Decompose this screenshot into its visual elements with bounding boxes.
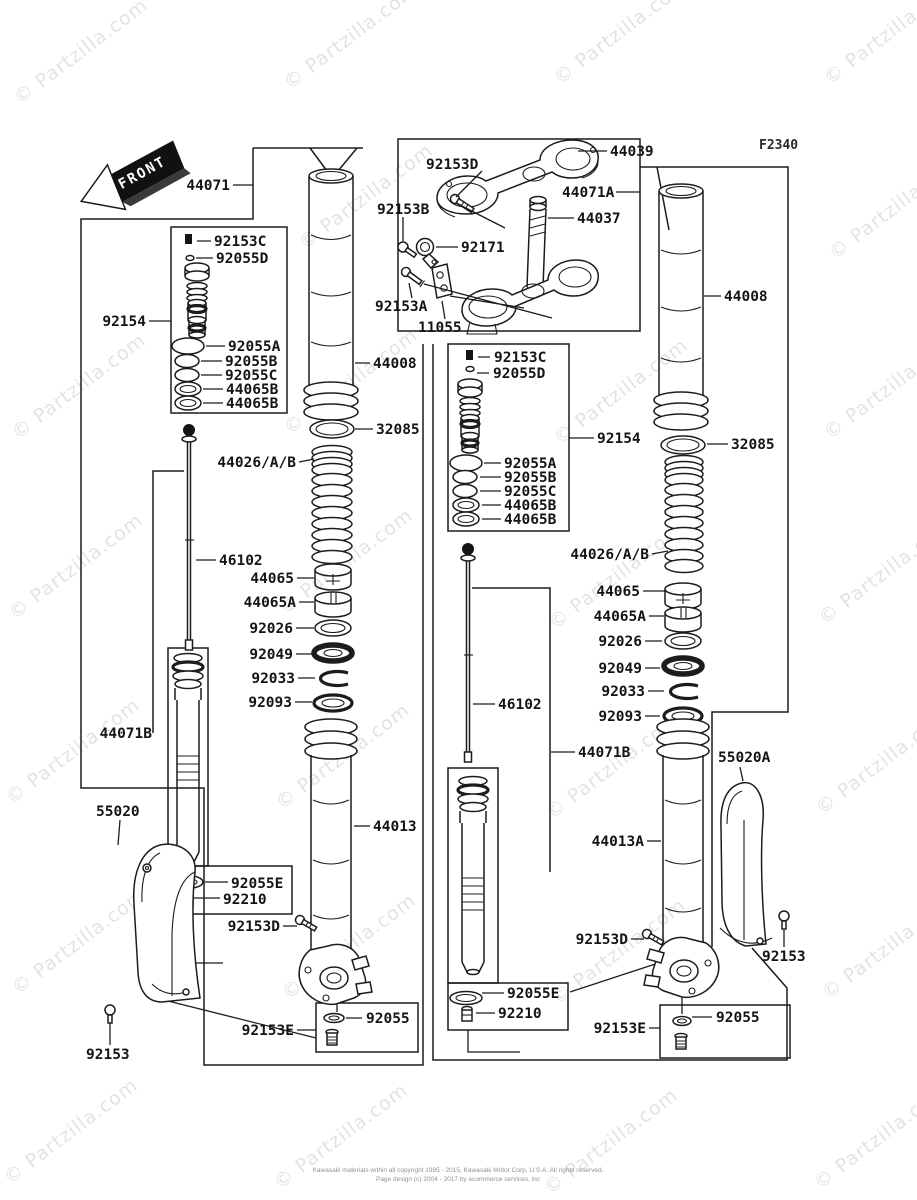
part-label-44039: 44039 bbox=[610, 144, 654, 160]
svg-text:© Partzilla.com: © Partzilla.com bbox=[820, 329, 917, 444]
part-label-44065-left: 44065 bbox=[250, 571, 294, 587]
svg-text:© Partzilla.com: © Partzilla.com bbox=[550, 0, 692, 89]
part-label-44071: 44071 bbox=[186, 178, 230, 194]
part-label-92093-right: 92093 bbox=[598, 709, 642, 725]
clamp-leader-lines bbox=[424, 203, 552, 318]
right-fork-guard-55020a bbox=[720, 783, 772, 946]
part-label-44026ab-left: 44026/A/B bbox=[217, 455, 296, 471]
part-label-92171: 92171 bbox=[461, 240, 505, 256]
svg-text:© Partzilla.com: © Partzilla.com bbox=[2, 694, 144, 809]
part-label-46102-left: 46102 bbox=[219, 553, 263, 569]
part-label-46102-right: 46102 bbox=[498, 697, 542, 713]
part-label-92153a: 92153A bbox=[375, 299, 428, 315]
part-label-92049-right: 92049 bbox=[598, 661, 642, 677]
part-label-92033-left: 92033 bbox=[251, 671, 295, 687]
footer-copyright-line1: Kawasaki materials within all copyright … bbox=[313, 1167, 604, 1174]
part-label-44013: 44013 bbox=[373, 819, 417, 835]
part-label-92154-left: 92154 bbox=[102, 314, 146, 330]
svg-text:© Partzilla.com: © Partzilla.com bbox=[10, 0, 152, 109]
part-label-44008-right: 44008 bbox=[724, 289, 768, 305]
svg-text:© Partzilla.com: © Partzilla.com bbox=[812, 704, 917, 819]
part-label-92153e-right-bottom: 92153E bbox=[594, 1021, 646, 1037]
svg-text:© Partzilla.com: © Partzilla.com bbox=[8, 884, 150, 999]
svg-text:© Partzilla.com: © Partzilla.com bbox=[818, 889, 917, 1004]
mid-cap-assembly-92154 bbox=[450, 350, 482, 526]
bracket-11055 bbox=[432, 264, 452, 298]
footer-copyright-line2: Page design (c) 2004 - 2017 by ecommerce… bbox=[376, 1176, 541, 1183]
part-label-92153c-mid: 92153C bbox=[494, 350, 546, 366]
front-arrow: FRONT bbox=[72, 137, 194, 223]
part-label-44026ab-right: 44026/A/B bbox=[570, 547, 649, 563]
part-label-92153b: 92153B bbox=[377, 202, 430, 218]
left-cap-assembly-92154 bbox=[172, 234, 209, 410]
svg-text:© Partzilla.com: © Partzilla.com bbox=[810, 1079, 917, 1194]
part-label-92026-left: 92026 bbox=[249, 621, 293, 637]
part-label-92153-right: 92153 bbox=[762, 949, 806, 965]
part-label-92153d-right-lower: 92153D bbox=[576, 932, 629, 948]
part-label-92055e-right: 92055E bbox=[507, 986, 559, 1002]
right-ring-32085 bbox=[661, 436, 705, 454]
part-label-92055-right-bottom: 92055 bbox=[716, 1010, 760, 1026]
part-label-92153c-left: 92153C bbox=[214, 234, 266, 250]
right-guard-bolt-92153 bbox=[779, 911, 789, 929]
right-seal-stack bbox=[664, 583, 702, 724]
part-label-92153e-left-bottom: 92153E bbox=[242, 1023, 294, 1039]
right-fork-spring bbox=[665, 456, 703, 573]
part-label-44071b-left: 44071B bbox=[100, 726, 153, 742]
svg-text:© Partzilla.com: © Partzilla.com bbox=[540, 1084, 682, 1199]
part-label-44037: 44037 bbox=[577, 211, 621, 227]
part-label-92210-right: 92210 bbox=[498, 1006, 542, 1022]
part-label-44013a: 44013A bbox=[592, 834, 645, 850]
left-inner-damper-tube bbox=[173, 654, 203, 865]
part-label-92055a-left: 92055A bbox=[228, 339, 281, 355]
part-label-44071b-right: 44071B bbox=[578, 745, 631, 761]
part-label-92055e-left: 92055E bbox=[231, 876, 283, 892]
part-label-92055d-mid: 92055D bbox=[493, 366, 546, 382]
part-label-32085-right: 32085 bbox=[731, 437, 775, 453]
part-label-92033-right: 92033 bbox=[601, 684, 645, 700]
bolt-92153a bbox=[400, 266, 425, 288]
part-label-92153d-left-lower: 92153D bbox=[228, 919, 281, 935]
part-label-92055-left-bottom: 92055 bbox=[366, 1011, 410, 1027]
part-label-44065a-right: 44065A bbox=[594, 609, 647, 625]
right-axle-casting bbox=[644, 937, 719, 997]
part-label-44071a: 44071A bbox=[562, 185, 615, 201]
part-label-92153-left: 92153 bbox=[86, 1047, 130, 1063]
part-label-92154-mid: 92154 bbox=[597, 431, 641, 447]
part-label-92055d-left: 92055D bbox=[216, 251, 269, 267]
svg-text:© Partzilla.com: © Partzilla.com bbox=[815, 514, 917, 629]
left-damper-rod-46102 bbox=[182, 424, 196, 650]
right-fork-outer-tube bbox=[654, 184, 708, 430]
part-label-44008-left: 44008 bbox=[373, 356, 417, 372]
part-label-32085-left: 32085 bbox=[376, 422, 420, 438]
part-label-92210-left: 92210 bbox=[223, 892, 267, 908]
left-fork-lower-tube bbox=[305, 719, 357, 952]
part-label-92049-left: 92049 bbox=[249, 647, 293, 663]
svg-text:© Partzilla.com: © Partzilla.com bbox=[5, 509, 147, 624]
left-fork-guard-55020 bbox=[134, 844, 200, 1002]
svg-text:© Partzilla.com: © Partzilla.com bbox=[0, 1074, 142, 1189]
left-bottom-box-parts bbox=[324, 1014, 344, 1046]
left-guard-bolt-92153 bbox=[105, 1005, 115, 1023]
part-label-44065a-left: 44065A bbox=[244, 595, 297, 611]
svg-text:© Partzilla.com: © Partzilla.com bbox=[825, 149, 917, 264]
part-label-44065b-left-2: 44065B bbox=[226, 396, 279, 412]
part-label-44065-right: 44065 bbox=[596, 584, 640, 600]
figure-code: F2340 bbox=[759, 138, 798, 153]
svg-text:© Partzilla.com: © Partzilla.com bbox=[8, 329, 150, 444]
part-label-55020: 55020 bbox=[96, 804, 140, 820]
parts-diagram-page: © Partzilla.com © Partzilla.com © Partzi… bbox=[0, 0, 917, 1200]
part-label-55020a: 55020A bbox=[718, 750, 771, 766]
left-lower-bolt-92153d bbox=[294, 914, 318, 933]
left-fork-spring bbox=[312, 446, 352, 564]
left-axle-casting bbox=[299, 944, 372, 1004]
right-bottom-box-parts bbox=[673, 1017, 691, 1050]
svg-text:© Partzilla.com: © Partzilla.com bbox=[820, 0, 917, 89]
bolt-92153b bbox=[398, 242, 416, 257]
part-label-11055: 11055 bbox=[418, 320, 462, 336]
part-label-92153d-top: 92153D bbox=[426, 157, 479, 173]
steering-stem bbox=[527, 197, 546, 291]
part-label-92026-right: 92026 bbox=[598, 634, 642, 650]
clamp-92171 bbox=[417, 239, 439, 269]
right-damper-rod-46102 bbox=[461, 543, 475, 762]
lower-triple-clamp bbox=[462, 260, 598, 334]
right-inner-damper-tube bbox=[458, 777, 488, 975]
part-label-44065b-mid-2: 44065B bbox=[504, 512, 557, 528]
svg-text:© Partzilla.com: © Partzilla.com bbox=[280, 0, 422, 94]
fork-parts-diagram: © Partzilla.com © Partzilla.com © Partzi… bbox=[0, 0, 917, 1200]
part-label-92093-left: 92093 bbox=[248, 695, 292, 711]
left-ring-32085 bbox=[310, 420, 354, 438]
right-drain-parts bbox=[450, 992, 482, 1022]
